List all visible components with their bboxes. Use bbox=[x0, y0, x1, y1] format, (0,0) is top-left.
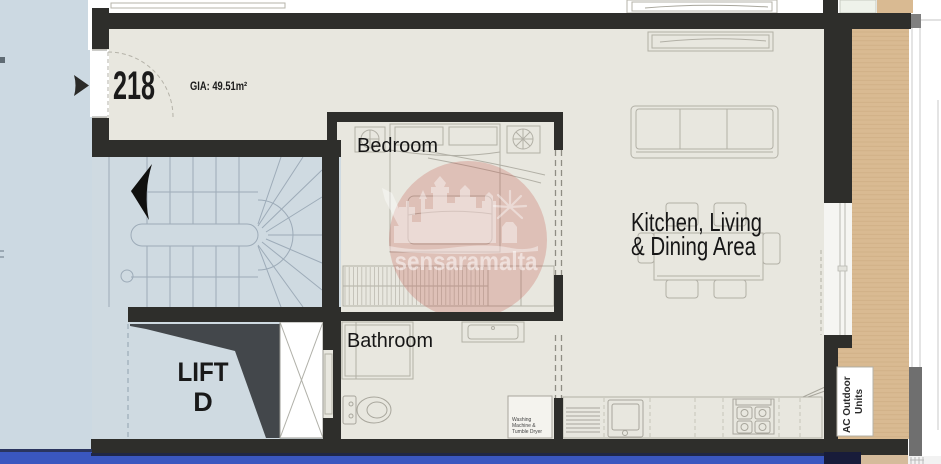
svg-text:D: D bbox=[193, 387, 213, 417]
svg-text:sensaramalta: sensaramalta bbox=[395, 246, 538, 276]
svg-text:Bedroom: Bedroom bbox=[357, 135, 438, 157]
svg-text:LIFT: LIFT bbox=[178, 357, 229, 387]
svg-text:Units: Units bbox=[854, 389, 865, 414]
svg-text:Bathroom: Bathroom bbox=[347, 330, 433, 352]
svg-text:GIA: 49.51m²: GIA: 49.51m² bbox=[190, 80, 248, 93]
svg-text:Tumble Dryer: Tumble Dryer bbox=[512, 429, 542, 435]
svg-text:& Dining Area: & Dining Area bbox=[631, 231, 756, 261]
svg-text:AC Outdoor: AC Outdoor bbox=[842, 376, 853, 433]
svg-text:218: 218 bbox=[113, 64, 155, 108]
